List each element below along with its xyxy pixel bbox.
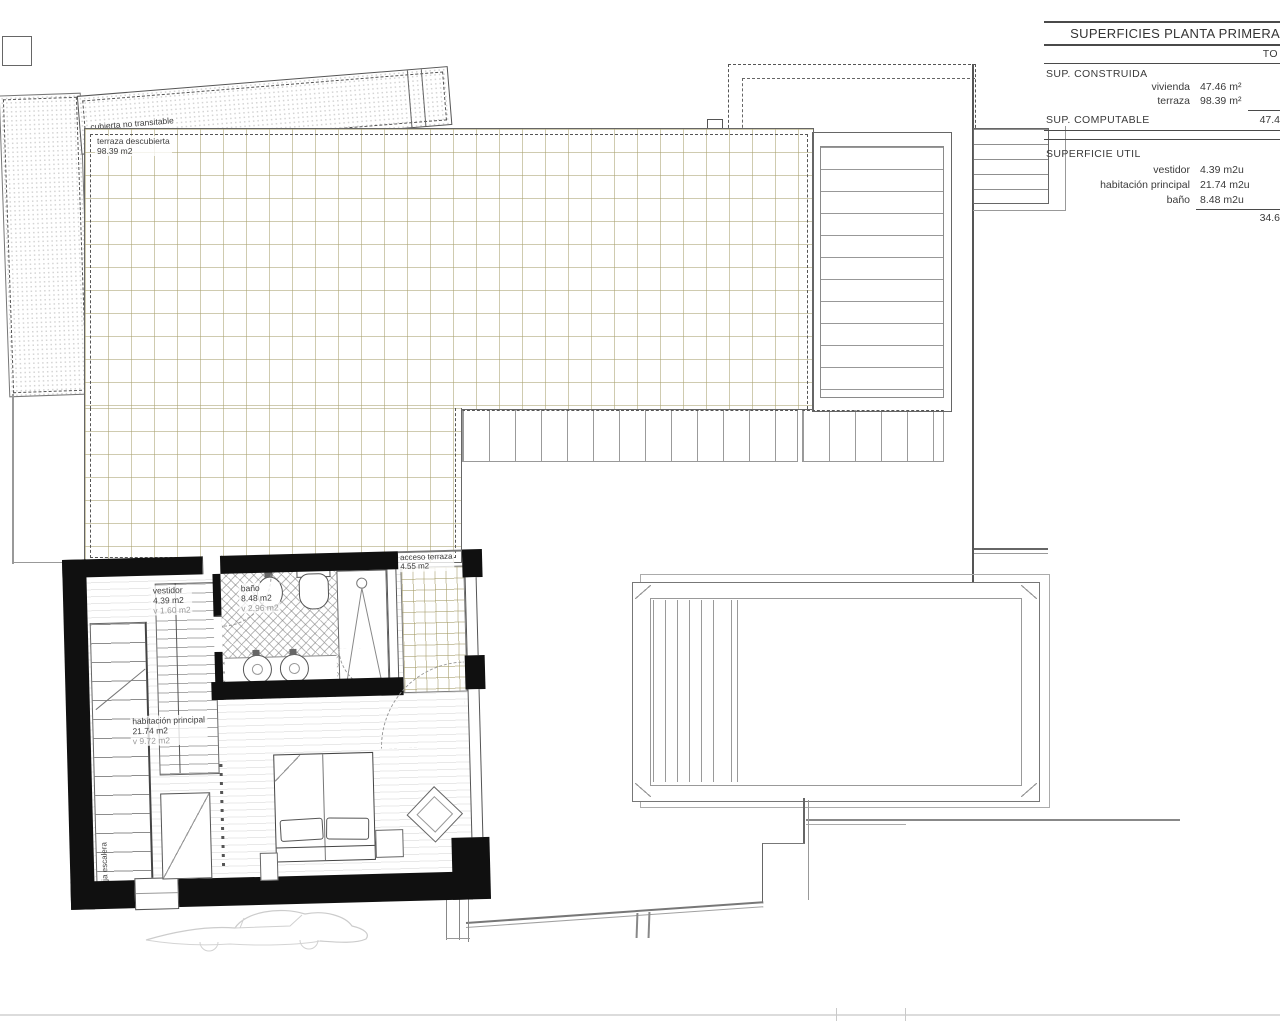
terrace-access-label: acceso terraza bbox=[400, 552, 453, 562]
deck-band-east bbox=[802, 410, 944, 462]
bedroom-label: habitación principal bbox=[132, 714, 205, 726]
nightstand bbox=[375, 829, 404, 858]
boundary-tick bbox=[905, 1008, 906, 1021]
row-value: 98.39 m² bbox=[1200, 95, 1241, 107]
toilet bbox=[298, 573, 329, 610]
table-rule bbox=[1044, 63, 1280, 64]
row-value: 8.48 m2u bbox=[1200, 194, 1244, 206]
wardrobe-mirror bbox=[160, 792, 212, 879]
section-sup-construida: SUP. CONSTRUIDA bbox=[1046, 68, 1148, 80]
util-total: 34.6 bbox=[1260, 212, 1280, 224]
exterior-stairs-south bbox=[762, 843, 805, 902]
plot-boundary-line bbox=[0, 1014, 1280, 1016]
east-window bbox=[465, 577, 479, 655]
deck-band-west bbox=[462, 410, 798, 462]
table-row: vestidor 4.39 m2u bbox=[1044, 164, 1280, 176]
house-block: Caja escalera bbox=[62, 549, 491, 910]
table-subrule bbox=[1248, 110, 1280, 111]
retaining-wall-line bbox=[466, 901, 763, 923]
east-wall-segment bbox=[451, 837, 491, 900]
pool-bevel bbox=[1021, 783, 1037, 797]
row-value: 4.39 m2u bbox=[1200, 164, 1244, 176]
floor-plan-page: { "table": { "title": "SUPERFICIES PLANT… bbox=[0, 0, 1280, 1024]
dressing-window: v 1.60 m2 bbox=[153, 605, 191, 616]
bedside-bench bbox=[260, 852, 279, 880]
east-line bbox=[974, 548, 1048, 550]
bed bbox=[273, 752, 376, 863]
surface-table: SUPERFICIES PLANTA PRIMERA TO SUP. CONST… bbox=[1044, 0, 1280, 230]
table-rule bbox=[1044, 130, 1280, 131]
sink-tap bbox=[289, 649, 296, 655]
row-label: vestidor bbox=[1044, 164, 1190, 176]
site-boundary-line bbox=[12, 562, 64, 563]
pillow bbox=[280, 818, 324, 843]
terrace-area: 98.39 m2 bbox=[97, 146, 132, 156]
bed-fold bbox=[274, 755, 301, 782]
table-title: SUPERFICIES PLANTA PRIMERA bbox=[1070, 26, 1280, 41]
terrace-access-area: 4.55 m2 bbox=[400, 562, 429, 572]
south-wall-niche bbox=[134, 877, 179, 910]
pool-step-line bbox=[731, 600, 732, 782]
pool-bevel bbox=[635, 783, 651, 797]
retaining-wall-line bbox=[466, 906, 763, 928]
section-sup-computable: SUP. COMPUTABLE bbox=[1046, 114, 1150, 126]
row-label: terraza bbox=[1044, 95, 1190, 107]
table-row: terraza 98.39 m² bbox=[1044, 95, 1280, 107]
table-rule bbox=[1044, 139, 1280, 140]
row-label: habitación principal bbox=[1044, 179, 1190, 191]
sink-drain bbox=[289, 663, 300, 674]
row-label: vivienda bbox=[1044, 81, 1190, 93]
table-row: vivienda 47.46 m² bbox=[1044, 81, 1280, 93]
pillow bbox=[326, 817, 369, 839]
sink-drain bbox=[252, 664, 263, 675]
total-column-header: TO bbox=[1263, 48, 1278, 60]
terrace-label: terraza descubierta bbox=[97, 136, 170, 146]
bed-centerline bbox=[322, 754, 326, 860]
niche-line bbox=[136, 892, 178, 894]
pool-outer bbox=[632, 582, 1040, 802]
ground-wall-line bbox=[808, 800, 809, 900]
pool-bevel bbox=[1021, 585, 1037, 599]
ground-line bbox=[806, 824, 906, 825]
roof-outline-northeast-inner bbox=[742, 78, 975, 133]
row-value: 21.74 m2u bbox=[1200, 179, 1250, 191]
ground-tick bbox=[648, 912, 650, 938]
east-sliding-door bbox=[468, 689, 484, 837]
pergola-louvers bbox=[820, 146, 944, 398]
table-rule bbox=[1044, 21, 1280, 23]
bath-label: baño bbox=[241, 583, 260, 593]
terrace-tiles-upper bbox=[84, 128, 814, 410]
terrace-dashed-border bbox=[90, 134, 808, 409]
pool-step-line bbox=[737, 600, 738, 782]
ground-line bbox=[806, 819, 1180, 821]
mirror-diagonal bbox=[161, 793, 211, 878]
pool-steps bbox=[653, 600, 725, 782]
section-superficie-util: SUPERFICIE UTIL bbox=[1046, 148, 1141, 160]
armchair-seat bbox=[416, 796, 453, 833]
left-roof-hatch bbox=[0, 93, 91, 398]
roof-corner-outline bbox=[2, 36, 32, 66]
east-line bbox=[974, 553, 1048, 554]
bedroom-window: v 9.72 m2 bbox=[133, 735, 171, 746]
terrace-tiles-lower bbox=[84, 408, 462, 563]
table-rule bbox=[1044, 44, 1280, 46]
table-row: baño 8.48 m2u bbox=[1044, 194, 1280, 206]
row-value: 47.46 m² bbox=[1200, 81, 1241, 93]
table-row: habitación principal 21.74 m2u bbox=[1044, 179, 1280, 191]
pool-bevel bbox=[635, 585, 651, 599]
computable-total: 47.4 bbox=[1260, 114, 1280, 126]
left-roof-inner-dashed bbox=[3, 97, 87, 393]
terrace-dashed-border bbox=[90, 408, 456, 558]
boundary-tick bbox=[836, 1008, 837, 1021]
section-line bbox=[446, 938, 470, 939]
bath-window: v 2.96 m2 bbox=[241, 602, 279, 613]
east-wall-segment bbox=[462, 549, 483, 578]
row-label: baño bbox=[1044, 194, 1190, 206]
table-subrule bbox=[1196, 209, 1280, 210]
east-wall-segment bbox=[465, 655, 486, 690]
ground-tick bbox=[636, 913, 638, 938]
sink-tap bbox=[252, 650, 259, 656]
site-boundary-line bbox=[12, 394, 14, 564]
